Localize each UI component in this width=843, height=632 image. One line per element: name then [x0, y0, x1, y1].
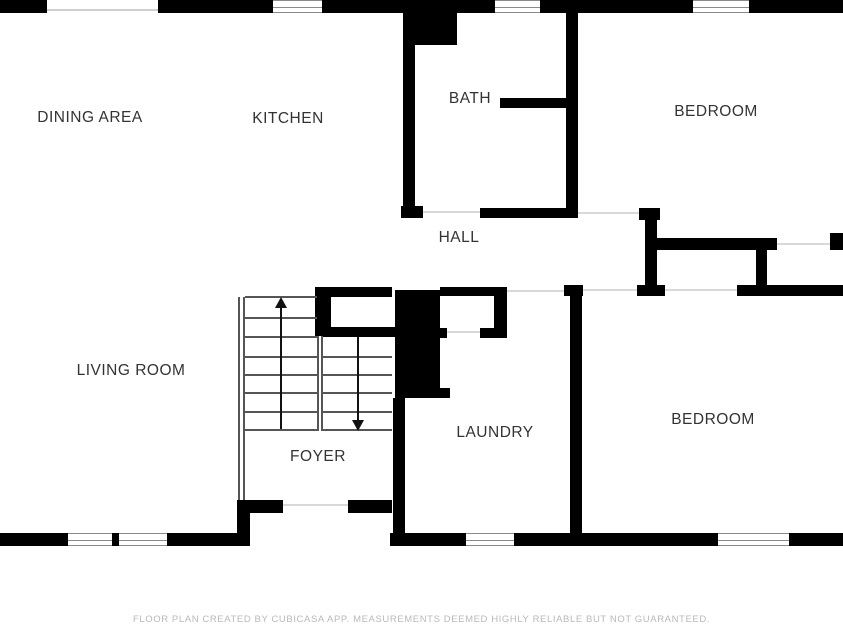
wall-mass [395, 290, 440, 398]
room-label-living-room: LIVING ROOM [77, 362, 186, 380]
room-label-kitchen: KITCHEN [252, 110, 324, 128]
wall-segment [564, 285, 583, 296]
wall-segment [797, 533, 843, 546]
room-label-laundry: LAUNDRY [456, 424, 533, 442]
window-mullion [112, 533, 119, 546]
window-post [167, 533, 175, 546]
wall-segment [757, 0, 843, 13]
stair-divider [317, 336, 323, 431]
window-post [749, 0, 757, 13]
entry-door-opening [283, 504, 348, 506]
wall-segment [550, 0, 685, 13]
closet-opening [665, 289, 737, 291]
wall-segment [639, 208, 660, 220]
wall-opening [47, 9, 158, 11]
room-label-bath: BATH [449, 90, 491, 108]
closet-opening [777, 243, 830, 245]
wall-segment [158, 0, 265, 13]
floorplan-disclaimer: FLOOR PLAN CREATED BY CUBICASA APP. MEAS… [0, 614, 843, 625]
wall-segment [437, 328, 447, 338]
wall-segment [480, 328, 507, 338]
window-post [458, 533, 466, 546]
wall-segment [348, 500, 392, 513]
room-label-foyer: FOYER [290, 448, 346, 466]
wall-segment [566, 13, 578, 218]
wall-segment [830, 233, 843, 250]
stair-stringer [238, 297, 245, 500]
window-post [265, 0, 273, 13]
window-post [514, 533, 522, 546]
window-post [685, 0, 693, 13]
window [685, 0, 757, 13]
wall-segment [390, 533, 458, 546]
room-label-hall: HALL [439, 229, 480, 247]
door-opening [583, 289, 637, 291]
room-label-bedroom-bottom: BEDROOM [671, 411, 755, 429]
wall-segment [0, 533, 60, 546]
door-opening [423, 211, 480, 213]
room-label-bedroom-top: BEDROOM [674, 103, 758, 121]
wall-segment [393, 398, 405, 546]
stairs-up-arrow-head [275, 297, 287, 308]
window-post [322, 0, 330, 13]
window-post [710, 533, 718, 546]
wall-segment [645, 210, 657, 295]
door-opening [447, 331, 480, 333]
wall-mass [405, 13, 457, 45]
wall-segment [318, 327, 400, 337]
floor-plan: DINING AREA KITCHEN BATH BEDROOM HALL LI… [0, 0, 843, 632]
door-opening [578, 212, 639, 214]
wall-segment [522, 533, 710, 546]
wall-segment [737, 285, 843, 296]
wall-mass [395, 388, 450, 398]
window-post [789, 533, 797, 546]
stairs-up-arrow [280, 306, 282, 429]
stairs-down-arrow [357, 337, 359, 421]
window-post [540, 0, 550, 13]
wall-segment [330, 0, 483, 13]
wall-segment [480, 208, 578, 218]
wall-segment [175, 533, 250, 546]
wall-segment [401, 206, 423, 218]
window [710, 533, 797, 546]
window [458, 533, 522, 546]
window-post [60, 533, 68, 546]
wall-segment [637, 285, 665, 296]
window [265, 0, 330, 13]
room-label-dining-area: DINING AREA [37, 109, 142, 127]
wall-segment [570, 292, 582, 533]
door-opening [507, 290, 564, 292]
window-post [483, 0, 495, 13]
wall-segment [440, 287, 507, 296]
stairs-down-arrow-head [352, 420, 364, 431]
wall-segment [0, 0, 47, 13]
wall-segment [500, 98, 572, 108]
